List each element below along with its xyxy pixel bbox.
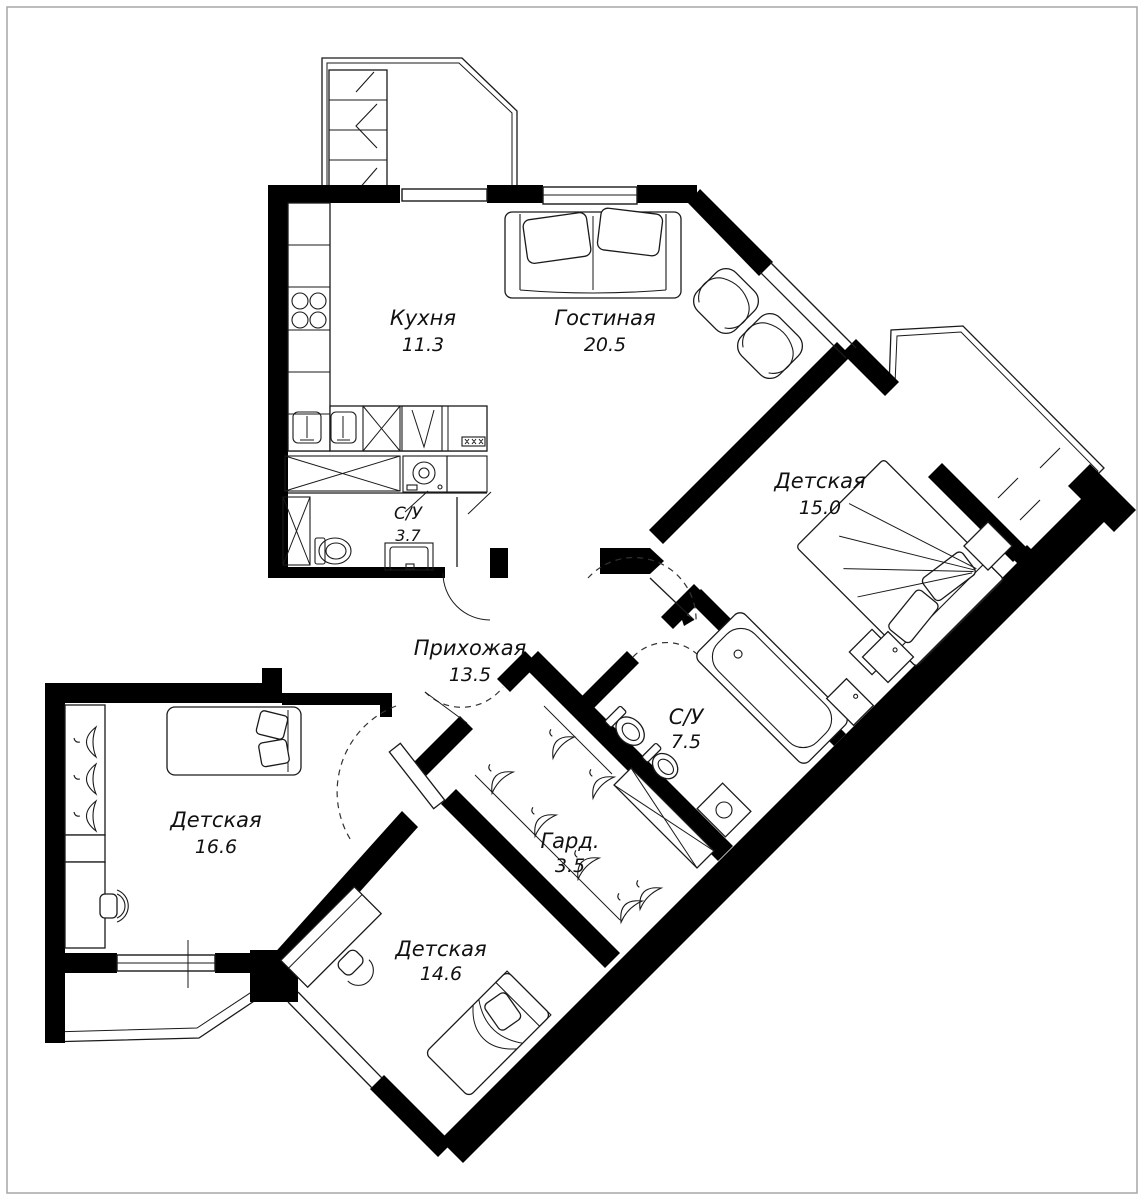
bathtub-icon xyxy=(694,610,851,767)
wardrobe-doors-icon xyxy=(998,448,1060,520)
hanger-icon xyxy=(577,761,614,798)
walls xyxy=(45,185,1136,1163)
room-area-hall: 13.5 xyxy=(449,664,491,686)
chair-icon xyxy=(100,890,128,922)
single-bed-icon xyxy=(167,707,301,775)
wardrobe-door-arc xyxy=(425,687,503,707)
room-label-wardrobe: Гард. xyxy=(540,829,599,853)
washing-machine-icon xyxy=(403,456,447,492)
floorplan-drawing: Кухня 11.3 Гостиная 20.5 Детская 15.0 С/… xyxy=(0,0,1144,1200)
kitchen-fixtures xyxy=(288,203,487,451)
shelf-icon xyxy=(65,835,105,862)
hanger-icon xyxy=(537,721,574,758)
laundry-cabinet-icon xyxy=(285,456,400,491)
room-label-living: Гостиная xyxy=(554,306,655,330)
hanger-icon xyxy=(605,885,642,922)
room-label-bath-big: С/У xyxy=(669,705,705,729)
room-label-kitchen: Кухня xyxy=(390,306,456,330)
room-label-child2: Детская xyxy=(169,808,261,832)
balcony-cabinet-icon xyxy=(329,70,387,192)
bedroom1-balcony xyxy=(889,326,1104,483)
room-area-child2: 16.6 xyxy=(195,836,237,858)
child2-door-arc xyxy=(337,706,396,842)
bath-big-door-arc xyxy=(633,643,699,657)
living-furniture xyxy=(505,207,809,384)
lobby-door-leaf2 xyxy=(468,492,491,514)
room-label-hall: Прихожая xyxy=(414,636,526,660)
child3-window xyxy=(288,992,382,1088)
sofa-icon xyxy=(505,207,681,298)
closet-icon xyxy=(65,705,105,835)
room-area-child3: 14.6 xyxy=(420,963,462,985)
room-label-child3: Детская xyxy=(394,937,486,961)
shower-icon xyxy=(385,543,433,570)
room-area-living: 20.5 xyxy=(584,334,626,356)
room-area-bath-big: 7.5 xyxy=(671,731,701,753)
room-area-child1: 15.0 xyxy=(799,497,841,519)
bath-small-door-arc xyxy=(443,573,490,620)
wardrobe-door-leaf xyxy=(425,692,467,723)
hanger-icon xyxy=(476,756,513,793)
room-area-wardrobe: 3.5 xyxy=(555,855,585,877)
room-area-kitchen: 11.3 xyxy=(402,334,444,356)
room-label-child1: Детская xyxy=(773,469,865,493)
room-area-bath-small: 3.7 xyxy=(395,526,421,545)
balcony-door-threshold xyxy=(402,189,487,201)
floorplan-canvas: Кухня 11.3 Гостиная 20.5 Детская 15.0 С/… xyxy=(0,0,1144,1200)
room-label-bath-small: С/У xyxy=(394,504,424,524)
toilet-icon xyxy=(315,538,351,564)
hanger-icon xyxy=(624,872,661,909)
kitchen-balcony xyxy=(322,58,517,192)
